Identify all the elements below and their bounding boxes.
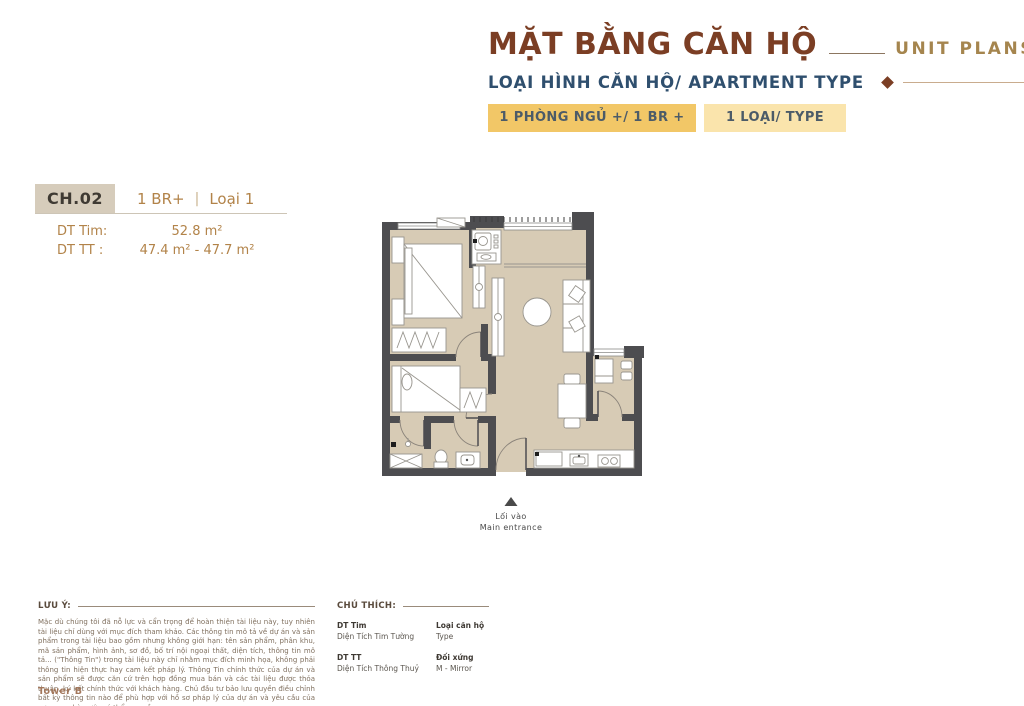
legend-item: Đối xứng M - Mirror [436,653,489,673]
subtitle-divider-line [903,82,1024,83]
nightstand [392,299,404,325]
page-title-english: UNIT PLANS [895,39,1024,63]
chair [564,374,580,384]
legend-header: CHÚ THÍCH: [337,601,489,611]
legend-label: CHÚ THÍCH: [337,601,396,611]
unit-category: 1 BR+ | Loại 1 [115,184,254,213]
badge-type-count: 1 LOẠI/ TYPE [704,104,846,132]
legend-definition: Type [436,632,489,641]
dining-table [558,384,586,418]
dt-tim-label: DT Tim: [35,224,107,239]
title-row: MẶT BẰNG CĂN HỘ UNIT PLANS [488,28,1024,63]
legend-rule [403,606,489,607]
subtitle: LOẠI HÌNH CĂN HỘ/ APARTMENT TYPE [488,73,864,92]
title-divider-line [829,53,885,54]
legend-item: DT Tim Diện Tích Tim Tường [337,621,430,641]
area-row-dt-tt: DT TT : 47.4 m² - 47.7 m² [35,243,287,258]
legend-definition: Diện Tích Tim Tường [337,632,430,641]
nightstand [392,237,404,263]
dt-tim-value: 52.8 m² [107,224,287,239]
round-table [523,298,551,326]
fridge [536,452,562,466]
legend-item: DT TT Diện Tích Thông Thuỷ [337,653,430,673]
unit-code-badge: CH.02 [35,184,115,213]
tower-label: Tower B [38,686,82,697]
legend-term: Đối xứng [436,653,489,662]
kitchen [534,450,634,468]
pillow [402,374,412,390]
subtitle-row: LOẠI HÌNH CĂN HỘ/ APARTMENT TYPE [488,73,1024,92]
dt-tt-value: 47.4 m² - 47.7 m² [107,243,287,258]
page-title: MẶT BẰNG CĂN HỘ [488,28,817,63]
floor-drain [406,442,411,447]
single-bed [392,366,460,412]
pillows [405,248,412,314]
laundry-nook [472,230,501,264]
disclaimer-rule [78,606,315,607]
legend-definition: M - Mirror [436,664,489,673]
legend-grid: DT Tim Diện Tích Tim Tường Loại căn hộ T… [337,621,489,673]
unit-plan-page: MẶT BẰNG CĂN HỘ UNIT PLANS LOẠI HÌNH CĂN… [0,0,1024,706]
floor-plan-drawing: Lối vào Main entrance [374,206,704,536]
unit-header-row: CH.02 1 BR+ | Loại 1 [35,184,287,214]
entrance-label-vi: Lối vào [495,511,526,521]
entrance-triangle-icon [505,497,518,506]
disclaimer-label: LƯU Ý: [38,601,71,611]
entrance-marker: Lối vào Main entrance [480,497,543,532]
diamond-icon [881,76,894,89]
fixture-dot [391,442,396,447]
unit-variant: Loại 1 [209,190,254,208]
legend-definition: Diện Tích Thông Thuỷ [337,664,430,673]
area-row-dt-tim: DT Tim: 52.8 m² [35,224,287,239]
shower [595,359,613,383]
unit-info: CH.02 1 BR+ | Loại 1 DT Tim: 52.8 m² DT … [35,184,287,258]
entrance-label-en: Main entrance [480,523,543,532]
fixture-dot [535,452,539,456]
legend-item: Loại căn hộ Type [436,621,489,641]
toilet [621,361,632,369]
legend-term: DT TT [337,653,430,662]
floor-plan: Lối vào Main entrance [374,206,704,536]
badge-bedroom-type: 1 PHÒNG NGỦ +/ 1 BR + [488,104,696,132]
basin [621,372,632,380]
badge-row: 1 PHÒNG NGỦ +/ 1 BR + 1 LOẠI/ TYPE [488,104,1024,132]
disclaimer-header: LƯU Ý: [38,601,315,611]
header: MẶT BẰNG CĂN HỘ UNIT PLANS LOẠI HÌNH CĂN… [488,28,1024,132]
fixture-dot [473,239,477,243]
legend-term: DT Tim [337,621,430,630]
unit-bedroom-type: 1 BR+ [137,190,185,208]
legend-section: CHÚ THÍCH: DT Tim Diện Tích Tim Tường Lo… [337,601,489,673]
category-separator: | [195,191,200,207]
dt-tt-label: DT TT : [35,243,107,258]
chair [564,418,580,428]
legend-term: Loại căn hộ [436,621,489,630]
fixture-dot [595,355,599,359]
